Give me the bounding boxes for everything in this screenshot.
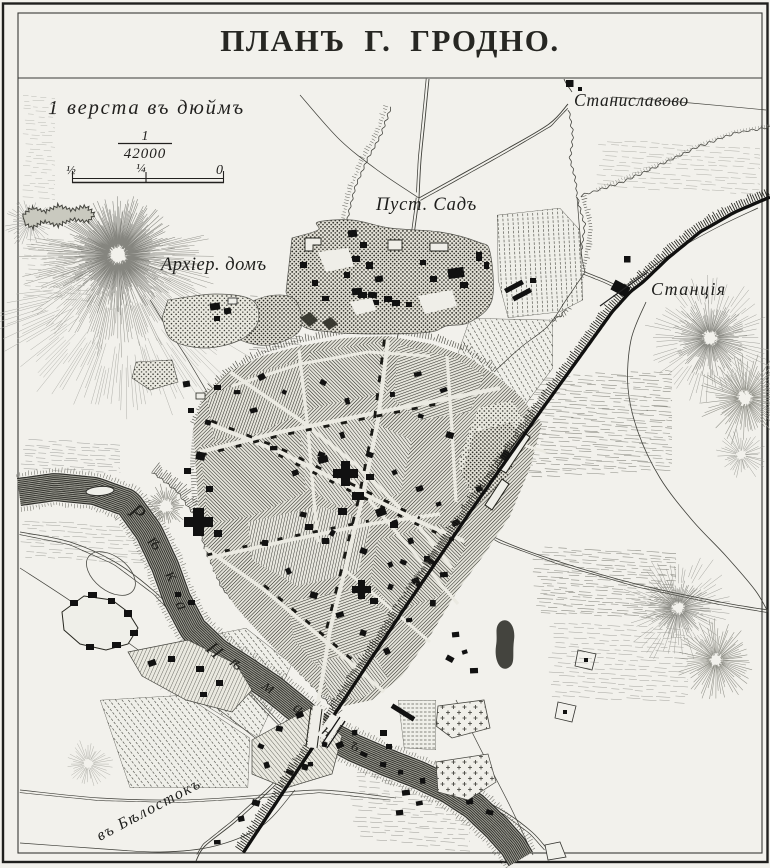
svg-text:1 верста въ дюймъ: 1 верста въ дюймъ: [48, 97, 245, 119]
svg-text:¼: ¼: [136, 160, 146, 175]
svg-text:Станиславово: Станиславово: [574, 90, 689, 110]
svg-text:Станція: Станція: [651, 279, 727, 299]
svg-text:½: ½: [66, 162, 76, 177]
svg-text:Пуст. Садъ: Пуст. Садъ: [375, 195, 477, 215]
svg-text:Архіер. домъ: Архіер. домъ: [159, 255, 267, 275]
svg-text:0: 0: [216, 163, 223, 178]
svg-text:ПЛАНЪ Г. ГРОДНО.: ПЛАНЪ Г. ГРОДНО.: [220, 23, 560, 58]
svg-text:1: 1: [142, 129, 149, 144]
